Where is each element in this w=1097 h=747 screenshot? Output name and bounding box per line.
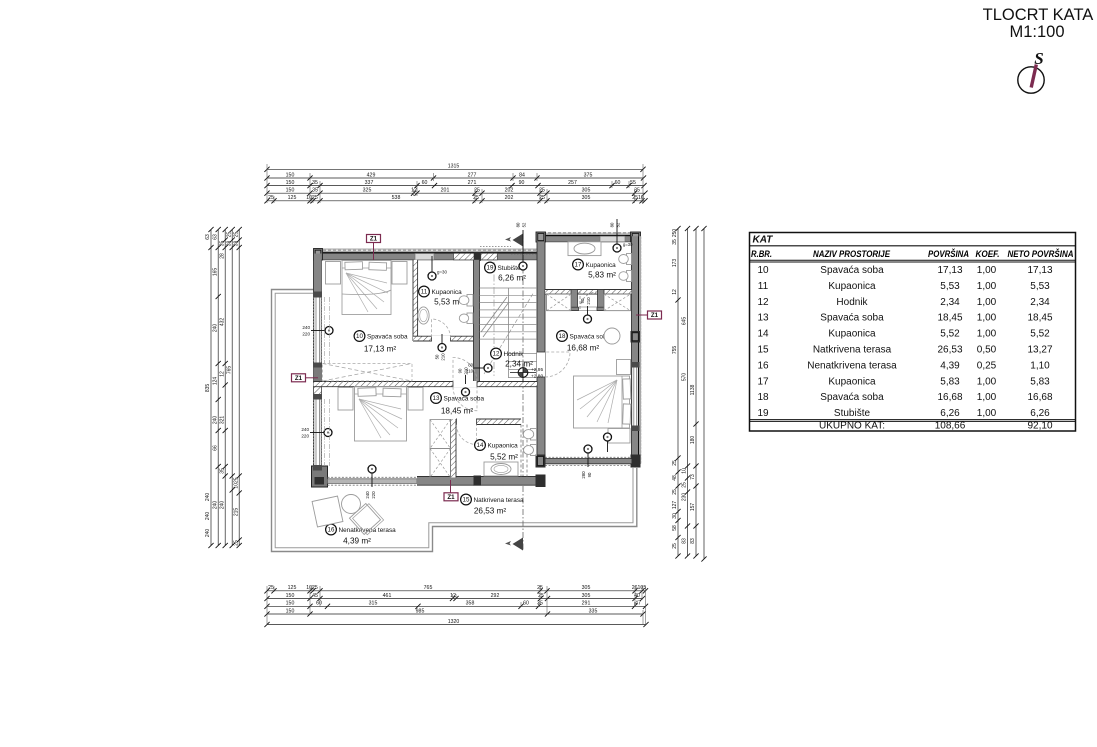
svg-text:Z1: Z1 bbox=[295, 375, 303, 382]
svg-text:1025: 1025 bbox=[306, 195, 318, 201]
svg-text:Z1: Z1 bbox=[651, 312, 659, 319]
svg-text:25: 25 bbox=[682, 482, 688, 488]
svg-text:90: 90 bbox=[458, 368, 463, 373]
svg-text:5,52: 5,52 bbox=[940, 329, 960, 340]
svg-text:150: 150 bbox=[286, 172, 295, 178]
svg-text:10: 10 bbox=[757, 265, 769, 276]
svg-text:1,00: 1,00 bbox=[977, 297, 997, 308]
svg-text:25: 25 bbox=[672, 460, 678, 466]
svg-text:765: 765 bbox=[226, 366, 232, 375]
svg-text:240: 240 bbox=[301, 427, 309, 432]
svg-text:0,25: 0,25 bbox=[977, 360, 997, 371]
svg-text:12: 12 bbox=[672, 289, 678, 295]
svg-text:Spavaća soba: Spavaća soba bbox=[367, 333, 408, 340]
svg-text:+2,80: +2,80 bbox=[531, 374, 543, 380]
svg-text:Stubište: Stubište bbox=[498, 265, 522, 272]
svg-text:TLOCRT KATA: TLOCRT KATA bbox=[983, 6, 1094, 24]
svg-text:16,68: 16,68 bbox=[1027, 392, 1052, 403]
svg-text:985: 985 bbox=[416, 608, 425, 614]
svg-text:150: 150 bbox=[286, 608, 295, 614]
svg-text:1,00: 1,00 bbox=[977, 281, 997, 292]
svg-text:25: 25 bbox=[672, 489, 678, 495]
svg-text:KOEF.: KOEF. bbox=[976, 249, 1000, 260]
svg-text:215: 215 bbox=[233, 508, 239, 517]
svg-text:60: 60 bbox=[422, 180, 428, 186]
svg-text:125: 125 bbox=[288, 195, 297, 201]
svg-text:1,00: 1,00 bbox=[977, 329, 997, 340]
svg-text:19: 19 bbox=[487, 265, 494, 272]
svg-text:13,27: 13,27 bbox=[1027, 345, 1052, 356]
svg-text:337: 337 bbox=[365, 180, 374, 186]
svg-text:60: 60 bbox=[316, 601, 322, 607]
svg-text:240: 240 bbox=[219, 501, 225, 510]
svg-text:305: 305 bbox=[582, 593, 591, 599]
svg-text:570: 570 bbox=[682, 373, 688, 382]
svg-text:5,53: 5,53 bbox=[1030, 281, 1050, 292]
svg-text:12: 12 bbox=[411, 188, 417, 194]
svg-text:157: 157 bbox=[690, 503, 696, 512]
svg-text:84: 84 bbox=[519, 172, 525, 178]
svg-text:g=30: g=30 bbox=[437, 270, 447, 275]
svg-text:1025: 1025 bbox=[306, 585, 318, 591]
svg-text:90: 90 bbox=[580, 298, 585, 303]
svg-text:58: 58 bbox=[672, 525, 678, 531]
svg-text:90: 90 bbox=[519, 180, 525, 186]
svg-text:305: 305 bbox=[582, 585, 591, 591]
svg-text:30: 30 bbox=[672, 513, 678, 519]
svg-text:257: 257 bbox=[568, 180, 577, 186]
svg-text:240: 240 bbox=[205, 493, 211, 502]
svg-text:60: 60 bbox=[523, 601, 529, 607]
svg-text:47: 47 bbox=[635, 601, 641, 607]
svg-text:15: 15 bbox=[463, 497, 470, 504]
svg-text:277: 277 bbox=[468, 172, 477, 178]
svg-text:Kupaonica: Kupaonica bbox=[586, 262, 617, 269]
svg-text:83: 83 bbox=[690, 538, 696, 544]
svg-text:315: 315 bbox=[369, 601, 378, 607]
svg-text:55: 55 bbox=[630, 180, 636, 186]
svg-text:210: 210 bbox=[441, 353, 446, 361]
svg-text:13: 13 bbox=[757, 313, 769, 324]
svg-text:25: 25 bbox=[233, 232, 239, 238]
svg-text:17,13 m²: 17,13 m² bbox=[364, 345, 397, 354]
svg-text:17,13: 17,13 bbox=[937, 265, 962, 276]
svg-text:5,83: 5,83 bbox=[940, 376, 960, 387]
svg-text:292: 292 bbox=[491, 593, 500, 599]
svg-text:15: 15 bbox=[757, 345, 769, 356]
svg-text:NETO POVRŠINA: NETO POVRŠINA bbox=[1008, 248, 1074, 260]
svg-text:12: 12 bbox=[757, 297, 769, 308]
svg-text:1,00: 1,00 bbox=[977, 265, 997, 276]
svg-text:240: 240 bbox=[212, 416, 218, 425]
svg-text:16: 16 bbox=[757, 360, 769, 371]
svg-text:4,39 m²: 4,39 m² bbox=[343, 537, 371, 546]
svg-text:11: 11 bbox=[758, 281, 769, 292]
svg-text:35: 35 bbox=[312, 188, 318, 194]
svg-text:230: 230 bbox=[682, 493, 688, 502]
svg-text:Z1: Z1 bbox=[447, 494, 455, 501]
svg-text:2,34: 2,34 bbox=[1030, 297, 1050, 308]
svg-text:1,10: 1,10 bbox=[1030, 360, 1050, 371]
svg-text:25: 25 bbox=[538, 593, 544, 599]
svg-text:Kupaonica: Kupaonica bbox=[488, 442, 519, 449]
svg-text:18,45 m²: 18,45 m² bbox=[441, 407, 474, 416]
svg-text:755: 755 bbox=[672, 346, 678, 355]
svg-text:173: 173 bbox=[672, 259, 678, 268]
svg-text:26105: 26105 bbox=[632, 585, 647, 591]
svg-text:25: 25 bbox=[473, 195, 479, 201]
svg-text:80: 80 bbox=[468, 363, 473, 368]
svg-text:80: 80 bbox=[610, 222, 615, 227]
svg-text:210: 210 bbox=[464, 367, 469, 375]
svg-text:12: 12 bbox=[493, 351, 500, 358]
svg-text:305: 305 bbox=[582, 195, 591, 201]
svg-text:17: 17 bbox=[757, 376, 769, 387]
svg-text:25: 25 bbox=[268, 195, 274, 201]
svg-text:291: 291 bbox=[582, 601, 591, 607]
svg-text:1,00: 1,00 bbox=[977, 392, 997, 403]
svg-text:Natkrivena terasa: Natkrivena terasa bbox=[474, 497, 525, 504]
svg-text:60: 60 bbox=[615, 180, 621, 186]
svg-text:UKUPNO KAT:: UKUPNO KAT: bbox=[819, 421, 885, 432]
svg-text:1138: 1138 bbox=[690, 384, 696, 395]
svg-text:305: 305 bbox=[582, 188, 591, 194]
svg-text:18,45: 18,45 bbox=[1027, 313, 1052, 324]
svg-text:210: 210 bbox=[586, 297, 591, 305]
svg-text:220: 220 bbox=[371, 491, 376, 499]
svg-text:5,83: 5,83 bbox=[1030, 376, 1050, 387]
svg-text:63: 63 bbox=[205, 234, 211, 240]
svg-text:50: 50 bbox=[435, 354, 440, 359]
svg-text:Spavaća soba: Spavaća soba bbox=[820, 313, 884, 324]
svg-text:80: 80 bbox=[516, 222, 521, 227]
svg-text:26,53 m²: 26,53 m² bbox=[474, 507, 507, 516]
svg-text:220: 220 bbox=[302, 331, 310, 336]
svg-text:73: 73 bbox=[690, 474, 696, 480]
svg-text:461: 461 bbox=[383, 593, 392, 599]
svg-text:14: 14 bbox=[757, 329, 769, 340]
svg-text:5,53: 5,53 bbox=[940, 281, 960, 292]
svg-text:645: 645 bbox=[682, 317, 688, 326]
svg-text:Kupaonica: Kupaonica bbox=[828, 329, 876, 340]
svg-text:66: 66 bbox=[212, 445, 218, 451]
svg-text:358: 358 bbox=[466, 601, 475, 607]
svg-text:202: 202 bbox=[505, 195, 514, 201]
svg-text:52: 52 bbox=[522, 222, 527, 227]
svg-text:Nenatkrivena terasa: Nenatkrivena terasa bbox=[807, 360, 897, 371]
svg-text:150: 150 bbox=[286, 593, 295, 599]
svg-text:127: 127 bbox=[672, 501, 678, 510]
svg-text:Nenatkrivena terasa: Nenatkrivena terasa bbox=[339, 527, 397, 534]
svg-text:90: 90 bbox=[587, 472, 592, 477]
svg-text:35: 35 bbox=[634, 188, 640, 194]
svg-text:35: 35 bbox=[219, 241, 225, 247]
svg-text:2,34 m²: 2,34 m² bbox=[505, 360, 533, 369]
svg-text:16,68: 16,68 bbox=[937, 392, 962, 403]
svg-text:63: 63 bbox=[212, 234, 218, 240]
svg-text:1320: 1320 bbox=[448, 619, 460, 625]
svg-text:KAT: KAT bbox=[753, 235, 774, 246]
svg-text:240: 240 bbox=[302, 325, 310, 330]
svg-text:Hodnik: Hodnik bbox=[836, 297, 868, 308]
svg-text:Z1: Z1 bbox=[370, 236, 378, 243]
svg-text:12: 12 bbox=[450, 593, 456, 599]
svg-text:429: 429 bbox=[367, 172, 376, 178]
svg-text:240: 240 bbox=[205, 529, 211, 538]
svg-text:13: 13 bbox=[433, 395, 440, 402]
svg-text:18,45: 18,45 bbox=[937, 313, 962, 324]
svg-text:Spavaća soba: Spavaća soba bbox=[820, 392, 884, 403]
svg-text:6,26: 6,26 bbox=[940, 408, 960, 419]
svg-text:240: 240 bbox=[212, 324, 218, 333]
svg-text:1,00: 1,00 bbox=[977, 313, 997, 324]
svg-text:280: 280 bbox=[581, 471, 586, 479]
svg-text:375: 375 bbox=[584, 172, 593, 178]
svg-text:48: 48 bbox=[672, 475, 678, 481]
svg-text:5,53 m²: 5,53 m² bbox=[434, 298, 462, 307]
svg-text:10: 10 bbox=[356, 333, 363, 340]
svg-text:1025: 1025 bbox=[233, 477, 239, 488]
svg-text:38: 38 bbox=[226, 241, 232, 247]
svg-text:150: 150 bbox=[286, 601, 295, 607]
svg-text:5,83 m²: 5,83 m² bbox=[588, 271, 616, 280]
svg-text:17,13: 17,13 bbox=[1027, 265, 1052, 276]
svg-text:5,52 m²: 5,52 m² bbox=[490, 453, 518, 462]
svg-text:18: 18 bbox=[757, 392, 769, 403]
svg-text:321: 321 bbox=[219, 416, 225, 425]
svg-text:1,00: 1,00 bbox=[977, 408, 997, 419]
svg-text:38: 38 bbox=[233, 241, 239, 247]
svg-text:25: 25 bbox=[233, 540, 239, 546]
svg-text:M1:100: M1:100 bbox=[1009, 23, 1064, 41]
svg-text:18: 18 bbox=[559, 333, 566, 340]
svg-text:Stubište: Stubište bbox=[834, 408, 871, 419]
svg-text:432: 432 bbox=[219, 318, 225, 327]
svg-text:240: 240 bbox=[205, 512, 211, 521]
svg-text:92,10: 92,10 bbox=[1027, 421, 1052, 432]
svg-text:16,68 m²: 16,68 m² bbox=[567, 344, 600, 353]
svg-text:12: 12 bbox=[219, 371, 225, 377]
svg-text:250: 250 bbox=[672, 229, 678, 238]
svg-text:16: 16 bbox=[328, 527, 335, 534]
svg-text:108,66: 108,66 bbox=[935, 421, 966, 432]
svg-text:35: 35 bbox=[219, 468, 225, 474]
svg-text:17: 17 bbox=[575, 262, 582, 269]
svg-text:835: 835 bbox=[205, 384, 211, 393]
svg-text:14: 14 bbox=[477, 442, 484, 449]
svg-text:35: 35 bbox=[537, 601, 543, 607]
svg-text:271: 271 bbox=[468, 180, 477, 186]
svg-text:220: 220 bbox=[301, 433, 309, 438]
svg-text:1,00: 1,00 bbox=[977, 376, 997, 387]
svg-text:1315: 1315 bbox=[448, 164, 460, 170]
svg-text:124: 124 bbox=[212, 377, 218, 386]
svg-text:11: 11 bbox=[421, 289, 428, 296]
svg-text:240: 240 bbox=[212, 501, 218, 510]
svg-text:Hodnik: Hodnik bbox=[504, 351, 525, 358]
svg-text:765: 765 bbox=[424, 585, 433, 591]
svg-text:Kupaonica: Kupaonica bbox=[432, 289, 463, 296]
svg-text:150: 150 bbox=[286, 180, 295, 186]
svg-text:4,39: 4,39 bbox=[940, 360, 960, 371]
svg-text:165: 165 bbox=[212, 268, 218, 277]
svg-text:Natkrivena terasa: Natkrivena terasa bbox=[813, 345, 892, 356]
svg-text:28: 28 bbox=[219, 253, 225, 259]
svg-text:150: 150 bbox=[286, 188, 295, 194]
svg-text:45: 45 bbox=[312, 593, 318, 599]
svg-text:125: 125 bbox=[288, 585, 297, 591]
svg-text:6,26: 6,26 bbox=[1030, 408, 1050, 419]
svg-text:83: 83 bbox=[682, 538, 688, 544]
svg-text:0,50: 0,50 bbox=[977, 345, 997, 356]
svg-text:25: 25 bbox=[672, 543, 678, 549]
svg-text:52: 52 bbox=[616, 222, 621, 227]
svg-text:Spavaća soba: Spavaća soba bbox=[820, 265, 884, 276]
svg-text:g=30: g=30 bbox=[623, 242, 633, 247]
svg-text:335: 335 bbox=[589, 608, 598, 614]
svg-text:325: 325 bbox=[363, 188, 372, 194]
svg-text:10: 10 bbox=[682, 468, 688, 474]
svg-text:NAZIV PROSTORIJE: NAZIV PROSTORIJE bbox=[813, 249, 891, 260]
svg-text:26,53: 26,53 bbox=[937, 345, 962, 356]
svg-text:25: 25 bbox=[268, 585, 274, 591]
svg-text:35: 35 bbox=[672, 239, 678, 245]
svg-text:35: 35 bbox=[312, 180, 318, 186]
svg-text:Kupaonica: Kupaonica bbox=[828, 376, 876, 387]
svg-text:201: 201 bbox=[441, 188, 450, 194]
svg-text:240: 240 bbox=[365, 491, 370, 499]
svg-text:Kupaonica: Kupaonica bbox=[828, 281, 876, 292]
svg-text:6,26 m²: 6,26 m² bbox=[498, 274, 526, 283]
svg-text:POVRŠINA: POVRŠINA bbox=[928, 248, 969, 260]
svg-text:538: 538 bbox=[392, 195, 401, 201]
svg-text:25: 25 bbox=[226, 232, 232, 238]
svg-text:5,52: 5,52 bbox=[1030, 329, 1050, 340]
svg-text:R.BR.: R.BR. bbox=[751, 249, 772, 260]
svg-text:202: 202 bbox=[505, 188, 514, 194]
svg-text:2,34: 2,34 bbox=[940, 297, 960, 308]
svg-text:19: 19 bbox=[757, 408, 769, 419]
svg-text:180: 180 bbox=[690, 436, 696, 445]
